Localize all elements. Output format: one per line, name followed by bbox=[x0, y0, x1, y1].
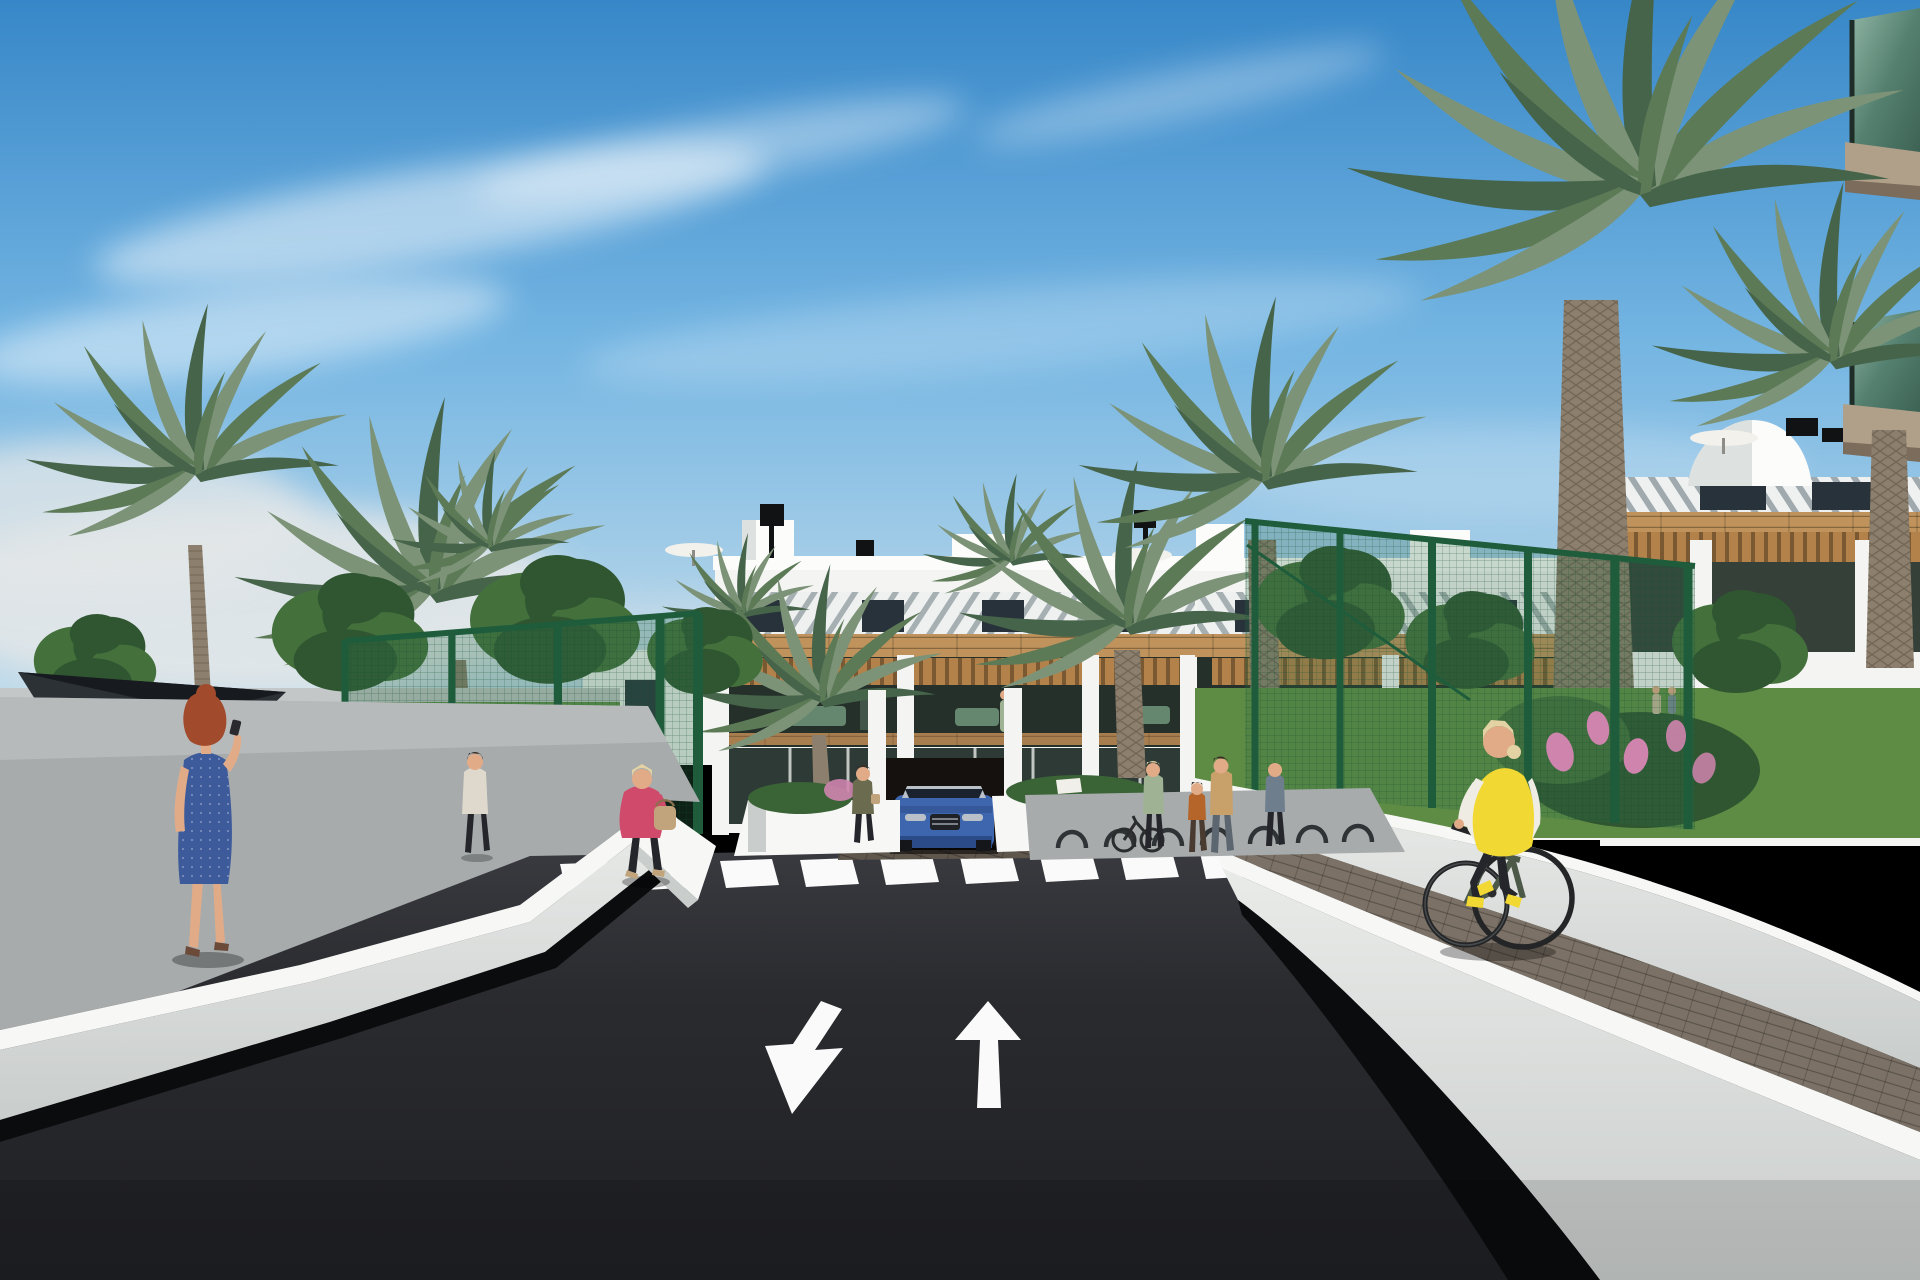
blue-suv bbox=[888, 786, 1000, 854]
garden-fence-right bbox=[1245, 520, 1695, 830]
architectural-render-image bbox=[0, 0, 1920, 1280]
planter-sign bbox=[1056, 778, 1082, 794]
render-canvas bbox=[0, 0, 1920, 1280]
vignette bbox=[0, 1180, 1920, 1280]
